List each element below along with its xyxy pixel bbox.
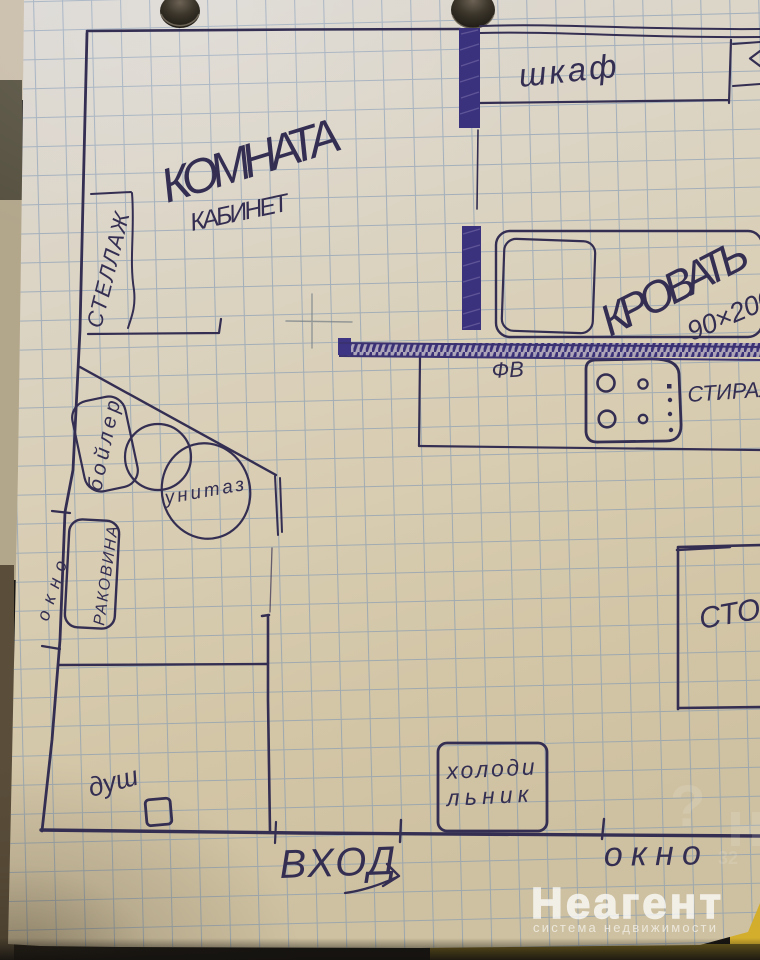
svg-text:ВХОД: ВХОД [279, 839, 396, 887]
svg-text:льник: льник [444, 781, 530, 811]
svg-text:32: 32 [718, 848, 738, 868]
svg-text:ФВ: ФВ [491, 356, 524, 383]
svg-text:система недвижимости: система недвижимости [533, 920, 718, 935]
svg-text:СТИРАЛ: СТИРАЛ [687, 376, 760, 407]
svg-text:?: ? [670, 774, 705, 839]
